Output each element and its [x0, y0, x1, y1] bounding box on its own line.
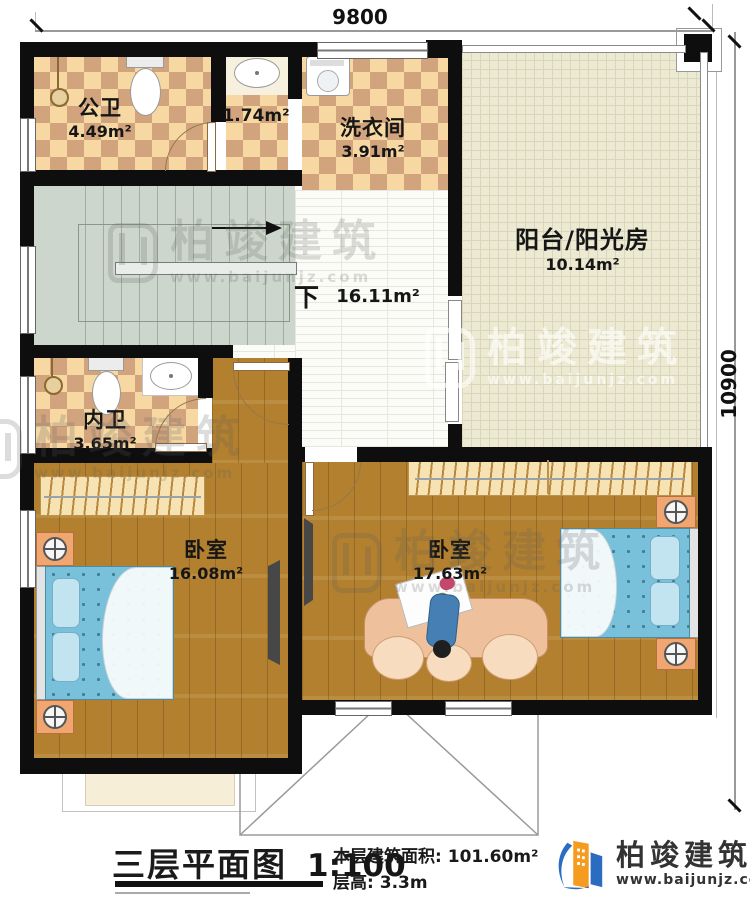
- shower-cord: [57, 57, 59, 89]
- room-name: 内卫: [55, 408, 155, 434]
- sliding-door: [445, 362, 459, 422]
- room-label-nook: 1.74m²: [214, 106, 298, 127]
- floor-height-line: 层高: 3.3m: [333, 868, 428, 893]
- title-underline: [115, 881, 323, 887]
- shower-cord: [51, 358, 53, 378]
- wall: [288, 55, 302, 99]
- pillow: [52, 632, 80, 682]
- washer-panel: [310, 60, 344, 66]
- sofa-cushion: [372, 636, 424, 680]
- room-hall-floor: [295, 190, 448, 447]
- room-area: 17.63m²: [392, 564, 508, 584]
- room-name: 洗衣间: [318, 116, 428, 142]
- room-label-laundry: 洗衣间 3.91m²: [318, 116, 428, 161]
- nightstand: [656, 496, 696, 528]
- room-area: 3.91m²: [318, 142, 428, 162]
- room-area: 16.08m²: [148, 564, 264, 584]
- blanket: [102, 567, 173, 699]
- window: [445, 701, 512, 716]
- pillow: [650, 582, 680, 626]
- room-label-public-bath: 公卫 4.49m²: [45, 96, 155, 141]
- stair-down-label: 下: [290, 283, 324, 314]
- stair-arrow-icon: [266, 221, 282, 235]
- room-label-balcony: 阳台/阳光房 10.14m²: [495, 226, 670, 275]
- wall: [698, 447, 712, 715]
- stair-direction: 下: [290, 283, 324, 314]
- room-label-hall: 16.11m²: [330, 286, 426, 308]
- floor-height-value: 3.3m: [380, 873, 428, 893]
- terrace: [85, 772, 235, 806]
- floor-area-line: 本层建筑面积: 101.60m²: [333, 842, 539, 867]
- floor-area-value: 101.60m²: [448, 847, 539, 867]
- room-name: 公卫: [45, 96, 155, 122]
- dimension-right-value: 10900: [717, 339, 741, 429]
- room-label-bedroom-left: 卧室 16.08m²: [148, 538, 264, 583]
- dimension-top-value: 9800: [315, 5, 405, 29]
- wardrobe-divider: [547, 460, 549, 494]
- sliding-door: [448, 300, 462, 360]
- window: [335, 701, 392, 716]
- washing-machine-icon: [306, 56, 350, 96]
- wall: [20, 42, 317, 57]
- window: [20, 376, 36, 454]
- nightstand: [656, 638, 696, 670]
- person-head: [433, 640, 451, 658]
- wardrobe: [40, 476, 205, 516]
- floor-plan: 公卫 4.49m² 1.74m² 洗衣间 3.91m² 阳台/阳光房 10.14…: [0, 0, 750, 902]
- window: [20, 246, 36, 334]
- room-name: 阳台/阳光房: [495, 226, 670, 255]
- wall: [20, 170, 302, 186]
- dimension-tick: [687, 6, 701, 20]
- stair-handrail: [115, 262, 297, 275]
- balcony-rail: [462, 45, 686, 53]
- window: [317, 42, 428, 59]
- logo-brand-url: www.baijunjz.com: [616, 872, 750, 888]
- room-name: 卧室: [392, 538, 508, 564]
- room-area: 10.14m²: [495, 255, 670, 275]
- tv-icon: [304, 518, 313, 606]
- tv-icon: [268, 560, 280, 665]
- window: [20, 118, 36, 172]
- dimension-line-top: [35, 30, 712, 32]
- wall: [198, 358, 213, 398]
- pillow: [52, 578, 80, 628]
- wall: [288, 358, 302, 774]
- room-area: 16.11m²: [330, 286, 426, 308]
- room-area: 4.49m²: [45, 122, 155, 142]
- washer-drum: [317, 70, 339, 92]
- wall: [20, 345, 233, 358]
- stair-direction-line: [212, 227, 268, 229]
- wall: [20, 42, 34, 118]
- watermark-logo-icon: [0, 419, 22, 479]
- sofa-cushion: [482, 634, 538, 680]
- nightstand: [36, 700, 74, 734]
- sink-icon: [150, 362, 192, 390]
- balcony-rail: [700, 52, 708, 449]
- room-label-bedroom-right: 卧室 17.63m²: [392, 538, 508, 583]
- shower-head-icon: [44, 376, 63, 395]
- logo-brand-name: 柏竣建筑: [616, 840, 750, 872]
- wall: [20, 586, 34, 774]
- toilet-tank: [88, 356, 124, 371]
- floor-area-label: 本层建筑面积:: [333, 847, 442, 867]
- room-area: 3.65m²: [55, 434, 155, 454]
- window: [20, 510, 36, 588]
- wall: [288, 447, 305, 462]
- wardrobe: [408, 460, 692, 496]
- wall: [20, 758, 302, 774]
- title-underline-thin: [115, 892, 250, 894]
- room-area: 1.74m²: [214, 106, 298, 127]
- blanket: [561, 529, 617, 637]
- plan-title: 三层平面图: [112, 845, 287, 884]
- pillow: [650, 536, 680, 580]
- room-name: 卧室: [148, 538, 264, 564]
- logo-icon: [552, 836, 608, 892]
- room-label-ensuite: 内卫 3.65m²: [55, 408, 155, 453]
- wall: [357, 447, 698, 462]
- nightstand: [36, 532, 74, 566]
- sink-icon: [234, 58, 280, 88]
- floor-height-label: 层高:: [333, 873, 374, 893]
- company-logo: 柏竣建筑 www.baijunjz.com: [552, 836, 750, 892]
- wall: [448, 40, 462, 296]
